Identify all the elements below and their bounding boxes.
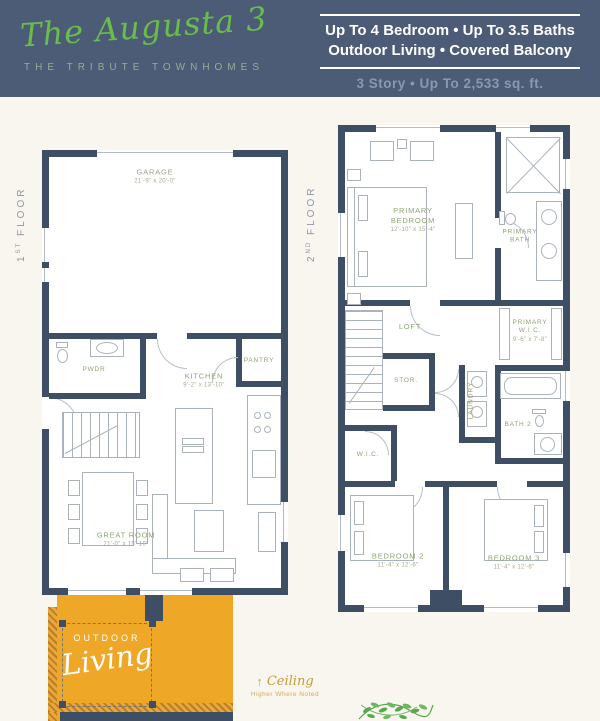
- wall: [459, 437, 495, 443]
- spec-line-3: 3 Story • Up To 2,533 sq. ft.: [318, 76, 582, 91]
- window: [364, 605, 418, 612]
- room-label-laundry: LAUNDRY: [468, 381, 475, 421]
- room-label-primary-wic: PRIMARY W.I.C. 9'-6" x 7'-8": [507, 319, 553, 345]
- toilet-icon: [505, 213, 516, 225]
- sink-icon: [541, 243, 557, 259]
- chair: [68, 504, 80, 520]
- ceiling-note: ↑ Ceiling Higher Where Noted: [240, 674, 330, 698]
- bathtub-inner: [504, 377, 557, 395]
- armchair: [210, 568, 234, 582]
- stairs: [62, 412, 140, 458]
- wall: [440, 300, 570, 306]
- window: [42, 268, 49, 282]
- sink-icon: [96, 342, 118, 354]
- pillow: [354, 531, 364, 555]
- coffee-table: [194, 510, 224, 552]
- floor2-label-sup: ND: [306, 241, 312, 254]
- nightstand: [347, 169, 361, 181]
- wall: [495, 365, 570, 371]
- wall: [391, 425, 397, 481]
- room-label-primary-bedroom: PRIMARY BEDROOM 12'-10" x 15'-4": [386, 206, 440, 234]
- room-label-garage: GARAGE 21'-9" x 20'-0": [134, 168, 175, 187]
- window: [496, 125, 530, 132]
- garage-door: [97, 150, 233, 157]
- burner-icon: [264, 426, 271, 433]
- pillow: [358, 251, 368, 277]
- window: [338, 213, 345, 257]
- room-label-bath2: BATH 2: [504, 421, 531, 429]
- patio-post: [149, 701, 156, 708]
- room-label-stor: STOR.: [394, 377, 418, 385]
- sink-icon: [182, 438, 204, 445]
- room-label-wic: W.I.C.: [357, 451, 380, 459]
- wall: [495, 132, 501, 218]
- burner-icon: [254, 412, 261, 419]
- header: The Augusta 3 THE TRIBUTE TOWNHOMES Up T…: [0, 0, 600, 97]
- window: [338, 515, 345, 551]
- chair: [136, 504, 148, 520]
- floor2-label: 2ND FLOOR: [306, 150, 317, 262]
- patio-post: [59, 701, 66, 708]
- pillow: [534, 531, 544, 553]
- toilet-icon: [535, 415, 544, 427]
- wall: [425, 481, 497, 487]
- toilet-icon: [56, 342, 68, 348]
- wall: [187, 333, 281, 339]
- up-arrow-icon: ↑: [256, 674, 263, 689]
- wall: [242, 381, 281, 387]
- room-label-loft: LOFT: [399, 322, 421, 332]
- patio-post: [149, 620, 156, 627]
- wall: [345, 481, 395, 487]
- outdoor-living-patio: OUTDOOR Living: [48, 595, 233, 721]
- spec-panel: Up To 4 Bedroom • Up To 3.5 Baths Outdoo…: [318, 14, 582, 91]
- toilet-icon: [57, 349, 68, 363]
- room-label-bedroom3: BEDROOM 3 11'-4" x 12'-6": [484, 554, 544, 573]
- chair: [68, 528, 80, 544]
- wall: [495, 248, 501, 300]
- spec-line-1: Up To 4 Bedroom • Up To 3.5 Baths: [318, 21, 582, 41]
- sink-icon: [182, 446, 204, 453]
- burner-icon: [254, 426, 261, 433]
- patio-wall: [60, 712, 233, 721]
- divider-bottom: [320, 67, 580, 69]
- side-table: [397, 139, 407, 149]
- kitchen-island: [175, 408, 213, 504]
- floor1-label-num: 1: [16, 253, 27, 262]
- wall: [527, 481, 570, 487]
- floor1-label-word: FLOOR: [16, 187, 27, 242]
- window: [563, 371, 570, 401]
- pillow: [358, 195, 368, 221]
- sink-icon: [541, 209, 557, 225]
- leaf-ornament-icon: [355, 697, 435, 721]
- wall: [338, 125, 570, 132]
- window: [563, 553, 570, 587]
- wall: [140, 339, 146, 399]
- wall: [383, 405, 429, 411]
- window: [42, 228, 49, 262]
- community-name: THE TRIBUTE TOWNHOMES: [24, 62, 264, 73]
- shower: [506, 137, 560, 193]
- wall: [443, 487, 449, 605]
- floor2-label-word: FLOOR: [306, 186, 317, 241]
- outdoor-living-label: OUTDOOR Living: [57, 633, 157, 676]
- floor1-label-sup: ST: [16, 242, 22, 254]
- wall: [49, 393, 146, 399]
- floor1-label: 1ST FLOOR: [16, 150, 27, 262]
- door-arc: [435, 393, 459, 417]
- dresser: [455, 203, 473, 259]
- burner-icon: [264, 412, 271, 419]
- pillow: [534, 505, 544, 527]
- pillow: [354, 501, 364, 525]
- room-label-pantry: PANTRY: [244, 357, 275, 365]
- window: [68, 588, 126, 595]
- door-arc: [157, 339, 187, 369]
- wall: [383, 353, 435, 359]
- room-label-pwdr: PWDR: [82, 366, 105, 374]
- floor2-label-num: 2: [306, 253, 317, 262]
- oven: [252, 450, 276, 478]
- window: [563, 159, 570, 189]
- entry-door-gap: [42, 397, 49, 429]
- chair: [68, 480, 80, 496]
- window: [281, 502, 288, 542]
- wall: [345, 425, 391, 431]
- floor1-plan: GARAGE 21'-9" x 20'-0" PWDR KITCHEN 9'-2…: [42, 150, 288, 595]
- room-label-bedroom2: BEDROOM 2 11'-4" x 12'-6": [368, 552, 428, 571]
- media-console: [258, 512, 276, 552]
- room-label-kitchen: KITCHEN 9'-2" x 13'-10": [183, 372, 224, 391]
- wall: [42, 150, 49, 595]
- sink-icon: [540, 437, 555, 452]
- room-label-primary-bath: PRIMARY BATH: [500, 229, 540, 246]
- wall: [430, 590, 462, 605]
- toilet-icon: [532, 409, 546, 414]
- floorplan-flyer: The Augusta 3 THE TRIBUTE TOWNHOMES Up T…: [0, 0, 600, 721]
- armchair: [370, 141, 394, 161]
- armchair: [180, 568, 204, 582]
- spec-line-2: Outdoor Living • Covered Balcony: [318, 41, 582, 61]
- chair: [136, 480, 148, 496]
- headboard: [347, 187, 355, 287]
- stair-break-line: [65, 425, 118, 454]
- stairs: [345, 310, 383, 410]
- armchair: [410, 141, 434, 161]
- room-label-great-room: GREAT ROOM 21'-0" x 15'-10": [97, 531, 156, 550]
- divider-top: [320, 14, 580, 16]
- stair-break-line: [349, 367, 375, 404]
- window: [140, 588, 192, 595]
- patio-post: [59, 620, 66, 627]
- wall: [145, 595, 163, 621]
- wall: [459, 365, 465, 443]
- window: [484, 605, 538, 612]
- wall: [495, 458, 570, 464]
- nightstand: [347, 293, 361, 305]
- window: [376, 125, 440, 132]
- floor2-plan: PRIMARY BEDROOM 12'-10" x 15'-4" PRIMARY…: [338, 125, 570, 612]
- door-arc: [435, 369, 459, 393]
- plan-title: The Augusta 3: [19, 0, 269, 55]
